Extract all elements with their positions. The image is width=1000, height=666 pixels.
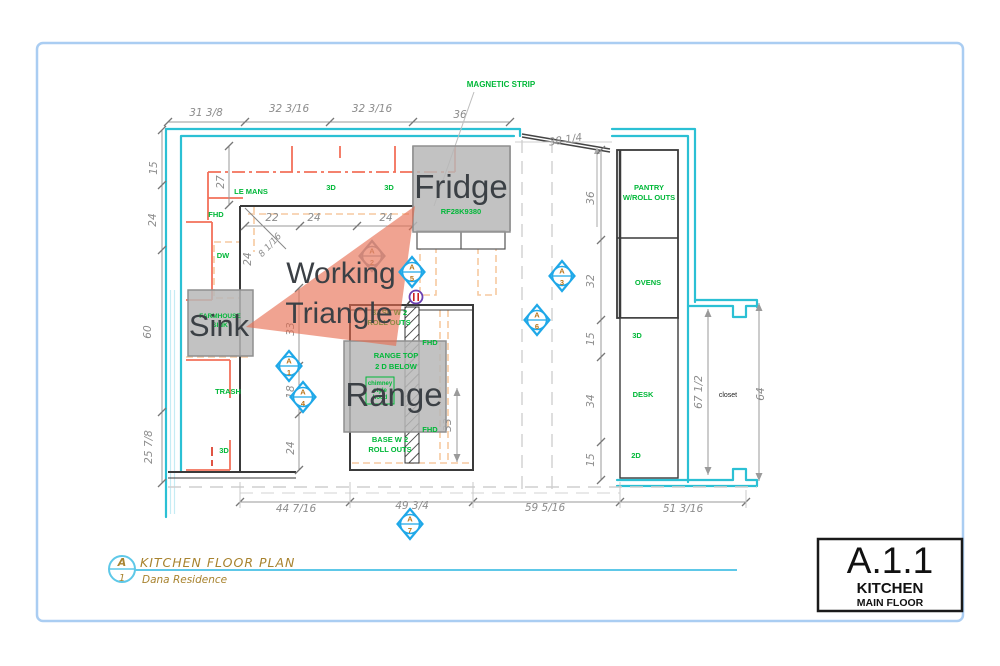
desk-label: DESK [633, 390, 654, 399]
marker-letter: A [559, 267, 565, 276]
working-triangle-label-1: Working [286, 257, 395, 290]
left-3d-label: 3D [219, 446, 229, 455]
wall-poche [171, 290, 175, 514]
working-triangle-label-2: Triangle [285, 297, 392, 330]
dim-inner-27: 27 [215, 175, 227, 189]
pantry-label-2: W/ROLL OUTS [623, 193, 675, 202]
sheet-floor: MAIN FLOOR [857, 597, 924, 609]
dim-right-34: 34 [585, 394, 597, 407]
base-bottom-label-1: BASE W 2 [372, 435, 408, 444]
section-marker-a6: A 6 [525, 305, 550, 335]
ovens-label: OVENS [635, 278, 661, 287]
marker-letter: A [409, 263, 415, 272]
drawing-sheet: 31 3/8 32 3/16 32 3/16 36 38 1/4 15 24 6… [0, 0, 1000, 666]
marker-number: 5 [410, 274, 414, 283]
sheet-code: A.1.1 [847, 540, 933, 581]
dim-inner-22: 22 [265, 212, 279, 224]
magnetic-strip-label: MAGNETIC STRIP [467, 80, 536, 89]
dim-right-15b: 15 [585, 453, 597, 467]
dim-right-36: 36 [585, 191, 597, 205]
fhd-left-label: FHD [208, 210, 224, 219]
marker-number: 3 [560, 278, 564, 287]
dim-top-2: 32 3/16 [269, 103, 310, 115]
dim-bottom-3: 59 5/16 [525, 502, 566, 514]
callout-number: 1 [119, 573, 125, 584]
outlet-symbol [406, 291, 423, 307]
dim-inner-24a: 24 [307, 212, 320, 224]
sink-label: Sink [189, 308, 250, 343]
section-marker-a3: A 3 [550, 261, 575, 291]
dim-left-2: 24 [147, 213, 159, 226]
title-block: A.1.1 KITCHEN MAIN FLOOR [818, 539, 962, 611]
marker-number: 1 [287, 368, 291, 377]
marker-letter: A [286, 357, 292, 366]
sheet-room: KITCHEN [857, 580, 924, 597]
dim-left-1: 15 [148, 161, 160, 175]
dim-bottom-4: 51 3/16 [663, 503, 704, 515]
dim-top-3: 32 3/16 [352, 103, 393, 115]
range-top-label-1: RANGE TOP [374, 351, 418, 360]
range-label: Range [345, 376, 442, 413]
pantry-label-1: PANTRY [634, 183, 664, 192]
dim-top-1: 31 3/8 [189, 107, 223, 119]
closet-label: closet [719, 392, 737, 399]
dim-corner-8: 8 1/16 [257, 232, 284, 260]
dim-left-4: 25 7/8 [143, 430, 155, 464]
right-2d-label: 2D [631, 451, 641, 460]
floor-plan-svg: 31 3/8 32 3/16 32 3/16 36 38 1/4 15 24 6… [0, 0, 1000, 666]
right-3d-label: 3D [632, 331, 642, 340]
section-marker-a1: A 1 [277, 351, 302, 381]
marker-letter: A [534, 311, 540, 320]
dim-bottom-1: 44 7/16 [276, 503, 317, 515]
fhd-island-bottom-label: FHD [422, 425, 438, 434]
marker-letter: A [300, 388, 306, 397]
top-3d-label-1: 3D [326, 183, 336, 192]
trash-label: TRASH [215, 387, 241, 396]
callout-letter: A [117, 556, 127, 569]
base-bottom-label-2: ROLL OUTS [368, 445, 411, 454]
dim-closet-64: 64 [755, 387, 767, 400]
dw-label: DW [217, 251, 230, 260]
dim-base-24: 24 [285, 441, 297, 454]
section-marker-a7: A 7 [398, 509, 423, 539]
drawing-title: KITCHEN FLOOR PLAN [140, 555, 295, 570]
dim-left-3: 60 [142, 325, 154, 339]
fridge-label: Fridge [414, 168, 508, 205]
drawing-subtitle: Dana Residence [142, 574, 227, 586]
dim-corner-24: 24 [242, 252, 254, 265]
le-mans-label: LE MANS [234, 187, 268, 196]
marker-number: 6 [535, 322, 539, 331]
drawing-title-area: A 1 KITCHEN FLOOR PLAN Dana Residence [109, 555, 737, 586]
top-3d-label-2: 3D [384, 183, 394, 192]
dim-closet-67: 67 1/2 [693, 375, 705, 409]
dim-right-15a: 15 [585, 332, 597, 346]
marker-number: 7 [408, 526, 412, 535]
marker-letter: A [407, 515, 413, 524]
dim-right-32: 32 [585, 274, 597, 288]
fridge-model-label: RF28K9380 [441, 207, 481, 216]
dim-inner-24b: 24 [379, 212, 392, 224]
range-top-label-2: 2 D BELOW [375, 362, 418, 371]
fhd-island-top-label: FHD [422, 338, 438, 347]
